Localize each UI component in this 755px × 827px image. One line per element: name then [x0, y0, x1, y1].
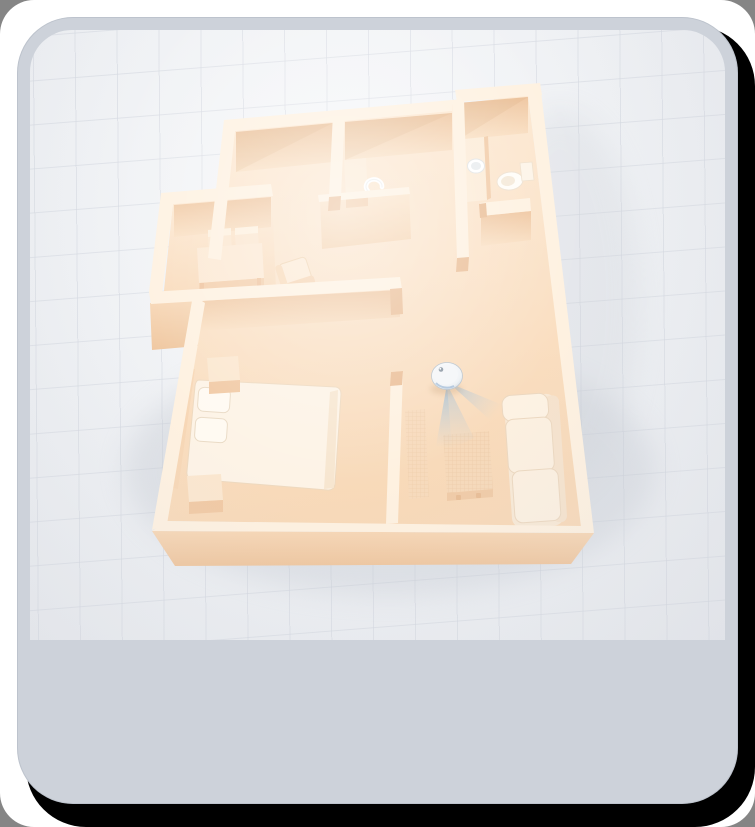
nightstand-south	[187, 474, 223, 502]
screenshot-root: { "meta": { "kind": "illustration", "des…	[0, 0, 755, 827]
pillow	[194, 417, 228, 443]
nightstand-north	[207, 356, 240, 382]
scene-viewport	[30, 30, 725, 640]
robot-camera-dot	[439, 367, 444, 372]
dining-table	[197, 243, 264, 283]
floorplan-svg	[30, 30, 725, 640]
floorplan-card	[17, 17, 738, 804]
sofa	[501, 392, 567, 529]
